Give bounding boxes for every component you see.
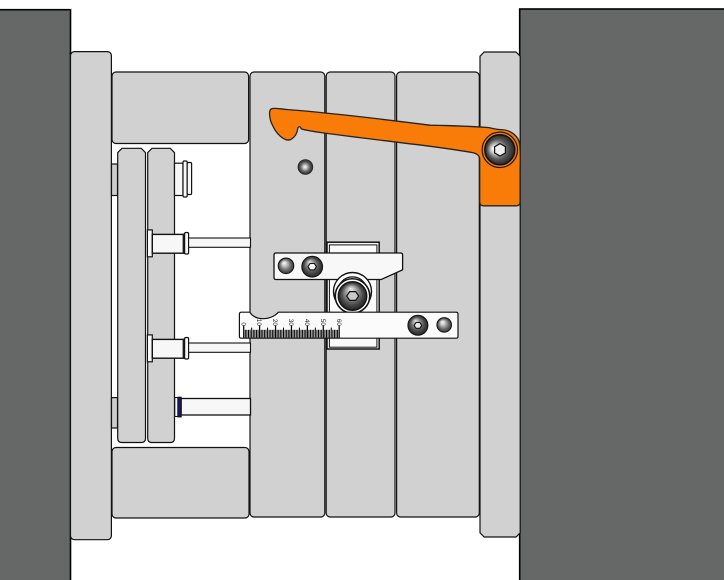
svg-text:60: 60 — [335, 319, 342, 327]
svg-text:50: 50 — [319, 319, 326, 327]
svg-text:40: 40 — [303, 319, 310, 327]
svg-text:20: 20 — [271, 319, 278, 327]
svg-text:0: 0 — [239, 322, 246, 326]
svg-text:10: 10 — [255, 319, 262, 327]
svg-text:30: 30 — [287, 319, 294, 327]
